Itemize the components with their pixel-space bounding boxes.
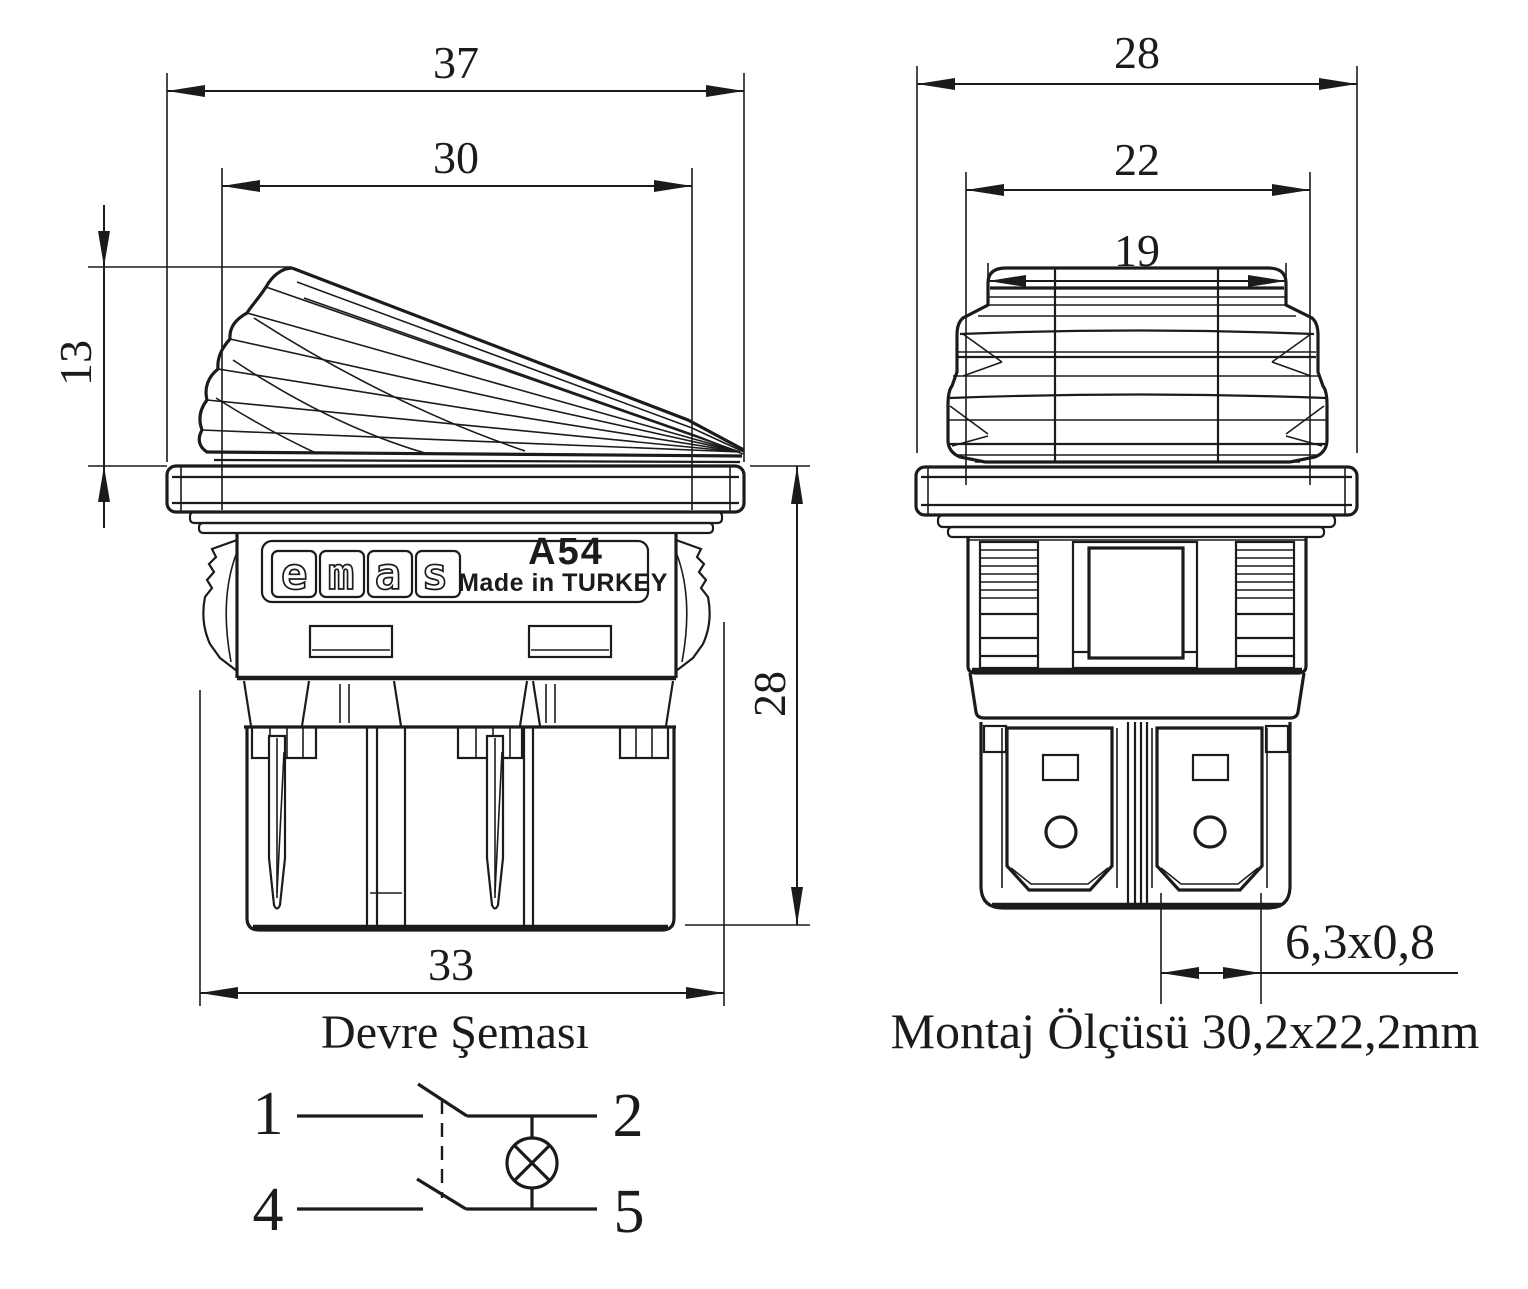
switch-body-front bbox=[968, 537, 1306, 718]
label-plate: emas A54 Made in TURKEY bbox=[262, 531, 668, 602]
dim-33-label: 33 bbox=[428, 939, 474, 990]
rib-panel-right bbox=[1236, 542, 1294, 668]
dim-terminal-label: 6,3x0,8 bbox=[1285, 913, 1435, 969]
body-window-right bbox=[529, 626, 611, 657]
brand-logo-text: emas bbox=[281, 549, 469, 600]
front-view: 28 22 19 bbox=[891, 27, 1480, 1059]
terminal-pin-left bbox=[269, 736, 285, 909]
mounting-flange-front bbox=[916, 467, 1357, 537]
rocker-actuator-side bbox=[199, 268, 744, 462]
schematic-title: Devre Şeması bbox=[321, 1006, 589, 1059]
drawing-canvas: 37 30 13 bbox=[0, 0, 1528, 1289]
terminal-1-label: 1 bbox=[253, 1080, 284, 1148]
model-code-text: A54 bbox=[528, 531, 604, 573]
terminal-pin-middle bbox=[487, 736, 503, 909]
mounting-dimension-note: Montaj Ölçüsü 30,2x22,2mm bbox=[891, 1003, 1480, 1059]
lamp-window bbox=[1073, 542, 1197, 668]
made-in-turkey-text: Made in TURKEY bbox=[458, 569, 668, 597]
rocker-actuator-front bbox=[948, 268, 1327, 462]
dimension-terminal-size: 6,3x0,8 bbox=[1161, 893, 1458, 1004]
retention-clip-right bbox=[676, 540, 710, 671]
terminal-5-label: 5 bbox=[614, 1178, 645, 1246]
spade-terminal-right bbox=[1152, 728, 1267, 890]
emas-logo: emas bbox=[272, 549, 469, 600]
circuit-schematic: Devre Şeması 1 2 4 5 bbox=[253, 1006, 645, 1246]
terminal-2-label: 2 bbox=[613, 1082, 644, 1150]
retention-clip-left bbox=[203, 540, 237, 671]
dimension-rocker-height-13: 13 bbox=[50, 205, 292, 528]
lamp-symbol bbox=[507, 1116, 557, 1209]
dimension-front-top-19: 19 bbox=[988, 225, 1286, 287]
dimension-body-height-28: 28 bbox=[685, 466, 810, 925]
rocker-switch-technical-drawing: 37 30 13 bbox=[0, 0, 1528, 1289]
terminal-block-front bbox=[981, 722, 1290, 908]
dim-30-label: 30 bbox=[433, 132, 479, 183]
switch-body-side: emas A54 Made in TURKEY bbox=[203, 531, 709, 678]
body-window-left bbox=[310, 626, 392, 657]
dim-28-left-label: 28 bbox=[744, 671, 795, 717]
dimension-flange-width-37: 37 bbox=[167, 37, 744, 462]
dim-37-label: 37 bbox=[433, 37, 479, 88]
dimension-front-cap-22: 22 bbox=[966, 134, 1310, 485]
mounting-flange-side bbox=[167, 466, 744, 533]
spade-terminal-left bbox=[1002, 728, 1117, 890]
side-view: 37 30 13 bbox=[50, 37, 810, 1006]
dim-28-right-label: 28 bbox=[1114, 27, 1160, 78]
rocker-rib-lines bbox=[202, 287, 740, 454]
terminal-housing-side bbox=[244, 681, 676, 930]
dim-22-label: 22 bbox=[1114, 134, 1160, 185]
rib-panel-left bbox=[980, 542, 1038, 668]
dim-13-label: 13 bbox=[50, 340, 101, 386]
terminal-4-label: 4 bbox=[253, 1176, 284, 1244]
